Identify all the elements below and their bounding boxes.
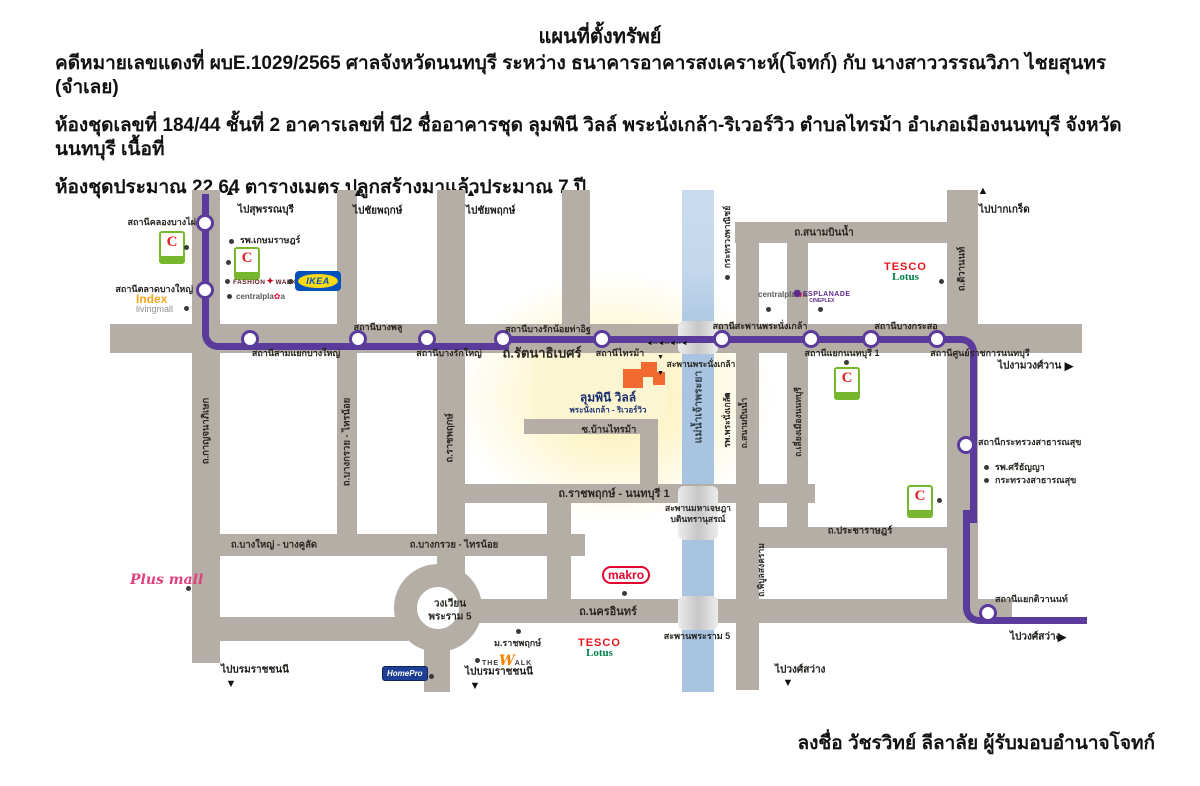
road-unnamed-north: [562, 190, 590, 324]
lotus-text: Lotus: [884, 272, 927, 282]
poi-dot: [475, 658, 480, 663]
poi-dot: [184, 245, 189, 250]
index-livingmall-logo: Indexlivingmall: [136, 294, 173, 314]
dest-label: ไปปากเกร็ด: [979, 203, 1030, 218]
poi-dot: [288, 279, 293, 284]
homepro-logo: HomePro: [382, 666, 428, 681]
dest-arrow-up-icon: ▲: [466, 187, 477, 199]
dest-arrow-up-icon: ▲: [978, 185, 989, 197]
station-label: สถานีแยกติวานนท์: [995, 592, 1068, 606]
bigc-logo: C: [159, 231, 185, 264]
walk-route-down-arrow-icon: ▼: [657, 370, 664, 377]
ikea-text: IKEA: [306, 276, 330, 286]
bigc-logo: C: [907, 485, 933, 518]
poi-label: รพ.ศรีธัญญา: [995, 460, 1045, 474]
poi-dot: [516, 629, 521, 634]
station-label: สถานีบางกระสอ: [874, 319, 937, 333]
road-label: ถ.ราชพฤกษ์ - นนทบุรี 1: [558, 484, 669, 502]
map-text: สะพานพระราม 5: [664, 629, 730, 643]
tesco-lotus-logo: TESCOLotus: [578, 638, 621, 658]
dest-arrow-right-icon: ▶: [1065, 360, 1073, 373]
station-label: สถานีไทรม้า: [596, 346, 644, 360]
station-marker: [957, 436, 975, 454]
road-makro-west: [547, 494, 571, 623]
poi-dot: [939, 279, 944, 284]
poi-dot: [984, 478, 989, 483]
swirl-icon: ✺: [793, 289, 802, 300]
dest-label: ไปชัยพฤกษ์: [466, 204, 515, 219]
road-label: ซ.บ้านไทรม้า: [582, 423, 637, 438]
fashion-walk-text: FASHION: [233, 279, 265, 286]
livingmall-text: livingmall: [136, 304, 173, 314]
plaintiff-signature-line: ลงชื่อ วัชรวิทย์ ลีลาลัย ผู้รับมอบอำนาจโ…: [797, 728, 1155, 758]
road-sanambinnam-phibunsongkhram: [736, 243, 759, 690]
road-label: ถ.สนามบินน้ำ: [737, 398, 751, 449]
station-label: สถานีกระทรวงสาธารณสุข: [978, 435, 1081, 449]
bigc-logo: C: [834, 367, 860, 400]
poi-dot: [818, 307, 823, 312]
poi-dot: [844, 360, 849, 365]
station-marker: [196, 214, 214, 232]
poi-dot: [766, 307, 771, 312]
bigc-letter: C: [242, 249, 253, 268]
station-marker: [196, 281, 214, 299]
bigc-letter: C: [915, 487, 926, 506]
tesco-lotus-logo: TESCOLotus: [884, 262, 927, 282]
dest-label: ไปบรมราชชนนี: [465, 665, 533, 680]
road-label: รพ.พระนั่งเกล้า: [720, 392, 734, 447]
ikea-oval: IKEA: [298, 274, 338, 288]
dest-arrow-down-icon: ▼: [226, 678, 237, 690]
bigc-band: [836, 392, 858, 398]
walk-route-down-arrow-icon: ▼: [657, 354, 664, 361]
centralplaza-text: centralpla: [758, 290, 796, 299]
rama5-bridge: [678, 596, 718, 630]
road-label: ถ.ราชพฤกษ์: [443, 413, 458, 462]
condo-building-shape: [623, 369, 643, 388]
road-label: ถ.รัตนาธิเบศร์: [503, 343, 582, 364]
poi-dot: [429, 674, 434, 679]
property-location-map: ◄--◄--◄--◄ ▼ ▼ C C C C FASHION✦WALK IKEA…: [0, 0, 1200, 786]
bigc-band: [161, 256, 183, 262]
poi-label: รพ.เกษมราษฎร์: [240, 233, 300, 247]
poi-dot: [225, 279, 230, 284]
station-label: สถานีบางรักใหญ่: [416, 346, 482, 360]
map-text: สะพานพระนั่งเกล้า: [667, 357, 736, 371]
dest-label: ไปบรมราชชนนี: [221, 663, 289, 678]
road-label: ถ.บางใหญ่ - บางคูลัด: [231, 538, 317, 553]
bigc-letter: C: [842, 369, 853, 388]
poi-dot: [937, 498, 942, 503]
lotus-text: Lotus: [578, 648, 621, 658]
road-label: ถ.นครอินทร์: [579, 602, 637, 620]
bigc-letter: C: [167, 233, 178, 252]
poi-label: กระทรวงสาธารณสุข: [995, 473, 1076, 487]
poi-dot: [226, 260, 231, 265]
centralplaza-text: centralpla: [236, 292, 274, 301]
station-label: สถานีแยกนนทบุรี 1: [805, 346, 880, 360]
centralplaza-text: a: [281, 292, 285, 301]
poi-dot: [725, 275, 730, 280]
road-label: ถ.บางกรวย - ไทรน้อย: [410, 538, 499, 553]
station-label: สถานีตลาดบางใหญ่: [115, 282, 193, 296]
road-label: ถ.ติวานนท์: [955, 247, 970, 291]
dancer-icon: ✦: [266, 276, 274, 286]
map-text: พระราม 5: [428, 610, 471, 625]
poi-dot: [622, 591, 627, 596]
road-label: ถ.บางกรวย - ไทรน้อย: [340, 398, 355, 487]
plus-mall-logo: Plus mall: [130, 572, 203, 588]
station-label: สถานีบางพลู: [354, 320, 403, 334]
station-label: สถานีสามแยกบางใหญ่: [252, 346, 340, 360]
bigc-band: [909, 510, 931, 516]
mrt-purple-line-south: [963, 510, 970, 565]
road-sanambinnam-top: [735, 222, 978, 243]
walk-route-left-arrows-icon: ◄--◄--◄--◄: [646, 340, 688, 347]
station-label: สถานีบางรักน้อยท่าอิฐ: [505, 322, 591, 336]
road-label: ถ.เลี่ยงเมืองนนทบุรี: [791, 387, 805, 457]
road-label: ถ.สนามบินน้ำ: [794, 226, 854, 241]
road-connector-southwest: [192, 617, 408, 641]
dest-label: ไปวงศ์สว่าง: [775, 663, 825, 678]
dest-label: ไปงามวงศ์วาน: [998, 359, 1061, 374]
fashion-walk-text: WALK: [275, 279, 296, 286]
poi-dot: [984, 465, 989, 470]
road-label: แม่น้ำเจ้าพระยา: [690, 371, 707, 444]
dest-label: ไปวงศ์สว่าง: [1010, 630, 1060, 645]
poi-dot: [186, 586, 191, 591]
station-label: สถานีสะพานพระนั่งเกล้า: [713, 319, 808, 333]
road-label: ถ.พิบูลสงคราม: [754, 543, 768, 597]
station-marker: [979, 604, 997, 622]
ikea-logo: IKEA: [295, 271, 341, 291]
makro-logo: makro: [602, 566, 650, 584]
soi-ban-sai-ma-vertical: [640, 434, 658, 490]
poi-dot: [227, 294, 232, 299]
road-label: ถ.กาญจนาภิเษก: [199, 398, 214, 465]
road-label: ถ.ประชาราษฎร์: [828, 524, 893, 539]
esplanade-logo: ✺ESPLANADECINEPLEX: [793, 288, 851, 305]
map-text: บดินทรานุสรณ์: [670, 512, 725, 526]
esplanade-text: ✺ESPLANADE: [793, 291, 851, 298]
dest-label: ไปชัยพฤกษ์: [353, 204, 402, 219]
map-text: พระนั่งเกล้า - ริเวอร์วิว: [570, 404, 647, 417]
flower-icon: ✿: [274, 292, 281, 301]
poi-dot: [184, 306, 189, 311]
dest-arrow-down-icon: ▼: [783, 677, 794, 689]
document-page: แผนที่ตั้งทรัพย์ คดีหมายเลขแดงที่ ผบE.10…: [0, 0, 1200, 786]
poi-dot: [229, 239, 234, 244]
dest-arrow-up-icon: ▲: [225, 186, 236, 198]
poi-label: ม.ราชพฤกษ์: [494, 636, 541, 650]
dest-arrow-down-icon: ▼: [470, 680, 481, 692]
centralplaza-logo: centralpla✿a: [236, 292, 285, 301]
dest-arrow-up-icon: ▲: [353, 187, 364, 199]
road-label: กระทรวงพาณิชย์: [720, 206, 734, 268]
station-label: สถานีคลองบางไผ่: [128, 215, 196, 229]
dest-label: ไปสุพรรณบุรี: [238, 203, 294, 218]
